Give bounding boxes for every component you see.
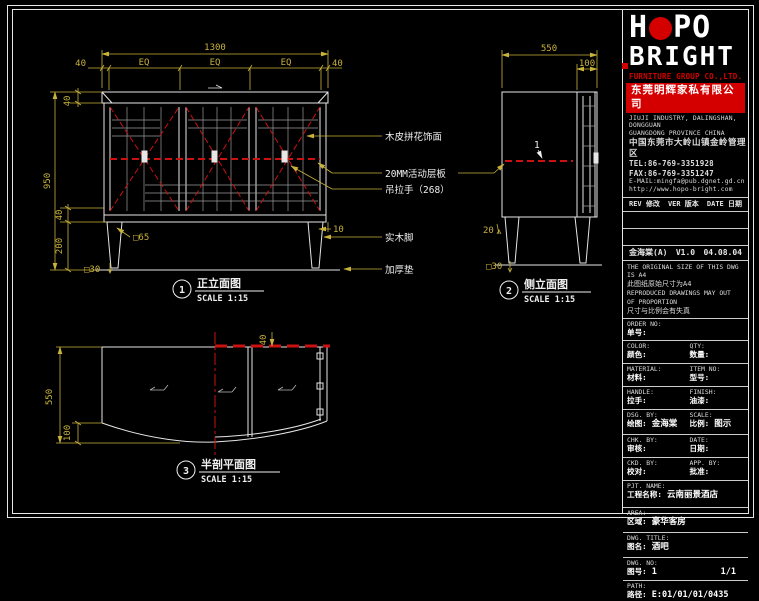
annotation-pad: 加厚垫: [385, 264, 414, 276]
date-col: DATE 日期: [707, 200, 742, 209]
logo-letters-po: PO: [673, 13, 711, 43]
title-block: H PO BRIGHT FURNITURE GROUP CO.,LTD. 东莞明…: [623, 9, 748, 513]
logo-bright: BRIGHT: [623, 43, 748, 70]
front-view-scale: SCALE 1:15: [197, 294, 248, 304]
field-check-date: CHK. BY:审核: DATE:日期:: [623, 435, 748, 458]
address-line3-cn: 中国东莞市大岭山镇金岭管理区: [623, 138, 748, 159]
dim-front-950: 950: [43, 173, 53, 189]
field-designer-scale: DSG. BY: 绘图:金海棠 SCALE: 比例:图示: [623, 410, 748, 435]
revision-version: V1.0: [676, 248, 695, 258]
dim-front-40-right: 40: [332, 59, 343, 69]
annotation-handle: 吊拉手（268）: [385, 184, 450, 196]
email: E-MAIL:mingfa@pub.dgnet.gd.cn: [623, 178, 748, 186]
revision-entry: 金海棠(A) V1.0 04.08.04: [623, 246, 748, 261]
plan-direction-arrows: [150, 385, 296, 392]
side-view: [495, 92, 602, 265]
dim-side-20: 20: [483, 226, 494, 236]
field-handle-finish: HANDLE:拉手: FINISH:油漆:: [623, 387, 748, 410]
front-dimensions: [50, 50, 342, 273]
dim-front-leg40: 40: [55, 210, 65, 221]
dim-front-eq2: EQ: [210, 58, 221, 68]
dim-plan-550: 550: [45, 389, 55, 405]
revision-header: REV 修改 VER 版本 DATE 日期: [623, 197, 748, 212]
phone: TEL:86-769-3351928: [623, 159, 748, 168]
revision-empty-row: [623, 212, 748, 229]
side-shelf-label: 1: [534, 140, 540, 151]
revision-name: 金海棠(A): [629, 248, 667, 258]
drawing-title-value: 酒吧: [652, 542, 669, 553]
annotation-wood-leg: 实木脚: [385, 232, 414, 244]
logo-o-disc-icon: [649, 17, 672, 40]
dim-front-eq1: EQ: [139, 58, 150, 68]
address-line1: JIUJI INDUSTRY, DALINGSHAN, DONGGUAN: [623, 115, 748, 131]
plan-view-title: 半剖平面图: [201, 457, 256, 471]
revision-date: 04.08.04: [703, 248, 742, 258]
front-view-number: 1: [179, 285, 185, 296]
logo-red-square-icon: [622, 63, 628, 69]
revision-empty-row: [623, 229, 748, 246]
fax: FAX:86-769-3351247: [623, 169, 748, 178]
sheet-count-value: 1/1: [721, 567, 736, 578]
company-name-cn: 东莞明辉家私有限公司: [626, 83, 745, 112]
path-value: E:01/01/01/0435: [652, 590, 729, 601]
size-note: THE ORIGINAL SIZE OF THIS DWG IS A4 此图纸原…: [623, 261, 748, 319]
side-view-scale: SCALE 1:15: [524, 295, 575, 305]
field-project-name: PJT. NAME: 工程名称:云南丽景酒店: [623, 481, 748, 508]
drawing-no-value: 1: [652, 567, 657, 578]
annotation-shelf: 20MM活动层板: [385, 168, 446, 180]
designer-value: 金海棠: [652, 419, 678, 430]
dim-front-top40: 40: [63, 96, 73, 107]
field-path: PATH: 路径:E:01/01/01/0435: [623, 581, 748, 599]
field-proof-approve: CKD. BY:校对: APP. BY:批准:: [623, 458, 748, 481]
dim-front-40-left: 40: [75, 59, 86, 69]
front-view: [95, 85, 340, 270]
plan-view-number: 3: [183, 466, 189, 477]
plan-view-scale: SCALE 1:15: [201, 475, 252, 485]
field-drawing-no: DWG. NO: 图号: 1 1/1: [623, 558, 748, 581]
dim-front-65: □65: [133, 233, 149, 243]
rev-col: REV 修改: [629, 200, 660, 209]
field-color-qty: COLOR:颜色: QTY:数量:: [623, 341, 748, 364]
field-drawing-title: DWG. TITLE: 图名:酒吧: [623, 533, 748, 558]
side-view-number: 2: [506, 286, 512, 297]
field-material-item: MATERIAL:材料: ITEM NO:型号:: [623, 364, 748, 387]
dim-front-total: 1300: [204, 43, 226, 53]
scale-value: 图示: [714, 419, 731, 430]
ver-col: VER 版本: [668, 200, 699, 209]
dim-front-10: 10: [333, 225, 344, 235]
dim-plan-100: 100: [63, 425, 73, 441]
annotation-veneer: 木皮拼花饰面: [385, 131, 442, 143]
area-value: 豪华客房: [652, 517, 686, 528]
website-link[interactable]: http://www.hopo-bright.com: [623, 186, 748, 194]
side-view-title: 侧立面图: [524, 277, 568, 291]
logo: H PO: [623, 9, 748, 43]
dim-front-200: 200: [55, 238, 65, 254]
dim-front-eq3: EQ: [281, 58, 292, 68]
dim-front-base30: □30: [84, 265, 100, 275]
dim-side-550: 550: [541, 44, 557, 54]
dim-plan-40: 40: [259, 335, 269, 346]
dim-side-100: 100: [579, 59, 595, 69]
dim-side-base30: □30: [486, 262, 502, 272]
cad-drawing-page: { "colors": { "background": "#000000", "…: [0, 0, 759, 524]
logo-letter-h: H: [629, 13, 648, 43]
project-name-value: 云南丽景酒店: [667, 490, 718, 501]
front-view-title: 正立面图: [197, 276, 241, 290]
plan-dimensions: [56, 332, 272, 445]
annotation-leaders: [291, 136, 504, 269]
field-area: AREA: 区域:豪华客房: [623, 508, 748, 533]
field-order-no: ORDER NO:单号:: [623, 319, 748, 341]
